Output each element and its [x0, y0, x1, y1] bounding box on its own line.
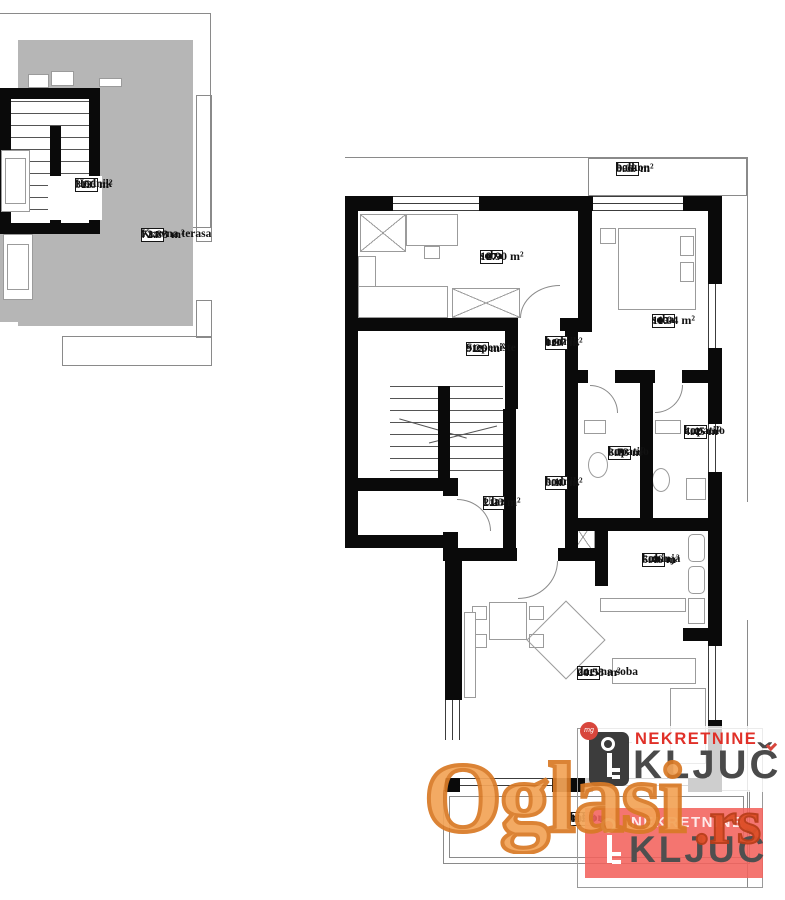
bed [358, 286, 448, 318]
pillow [680, 236, 694, 256]
dining-table [489, 602, 527, 640]
sink [584, 420, 606, 434]
wall-segment [565, 383, 578, 560]
room-area: 11.04 m² [652, 314, 695, 327]
stair-divider [438, 386, 450, 478]
mini-plan-side-strip [196, 95, 212, 242]
key-tooth [612, 860, 621, 864]
kitchen-counter [600, 598, 686, 612]
wall-segment [357, 478, 447, 491]
elevator-cab [5, 158, 26, 204]
room-area: 4.45 m² [684, 425, 722, 438]
nightstand [600, 228, 616, 244]
furniture [99, 78, 122, 87]
washing-machine [686, 478, 706, 500]
window [445, 700, 462, 740]
window [708, 646, 722, 720]
room-area: 24.58 m² [577, 666, 621, 679]
window [593, 196, 683, 211]
wall-segment [578, 210, 592, 332]
toilet [652, 468, 670, 492]
kitchen-counter [688, 534, 705, 562]
wall-segment [578, 370, 588, 383]
oglasi-watermark: Oglasi [424, 748, 684, 848]
wall-segment [615, 370, 655, 383]
wall-segment [503, 409, 516, 560]
wall-segment [357, 318, 518, 331]
oglasi-rs-suffix: .rs [694, 792, 761, 854]
wardrobe [360, 214, 406, 252]
wall-segment [560, 318, 583, 331]
room-area: 9.26 m² [466, 342, 504, 355]
toilet [588, 452, 608, 478]
mini-plan-side-strip [196, 300, 212, 338]
desk [406, 214, 458, 246]
furniture [51, 71, 74, 86]
room-area: 72.88 m² [141, 228, 185, 241]
tv-unit [464, 612, 476, 698]
wall-segment [345, 535, 458, 548]
wall-segment [345, 196, 358, 548]
door-arc [590, 385, 618, 413]
facade-line [747, 157, 748, 502]
wall-segment [683, 628, 722, 641]
floor-plan-image: 07 soba 12.90 m² 03 soba 11.04 m² 06 bal… [0, 0, 785, 900]
room-area: 2.23 m² [483, 496, 521, 509]
chair [424, 246, 440, 259]
bed [452, 288, 520, 318]
furniture [28, 74, 49, 88]
sink [655, 420, 681, 434]
door-arc [655, 385, 683, 413]
chair [529, 606, 544, 620]
wall-segment [565, 518, 708, 531]
room-area: 1.97 m² [545, 336, 583, 349]
stove [688, 598, 705, 624]
wall-segment [445, 548, 517, 561]
wall-segment [682, 370, 722, 383]
room-area: 3.73 m² [608, 446, 646, 459]
logo-badge: mg [580, 722, 598, 740]
room-area: 5.46 m² [642, 553, 680, 566]
window [393, 196, 479, 211]
wall-segment [558, 548, 598, 561]
window [708, 284, 722, 348]
furniture [7, 244, 29, 290]
room-area: 12.90 m² [480, 250, 524, 263]
room-area: 5.10 m² [545, 476, 583, 489]
balcony-06-outline [588, 158, 747, 196]
door-arc [518, 561, 558, 599]
door-arc [520, 285, 560, 318]
room-area: 8.09 m² [616, 162, 654, 175]
kitchen-counter [688, 566, 705, 594]
room-area: 3.56 m² [75, 178, 113, 191]
mini-plan-lower-balcony-outline [62, 336, 212, 366]
pillow [680, 262, 694, 282]
